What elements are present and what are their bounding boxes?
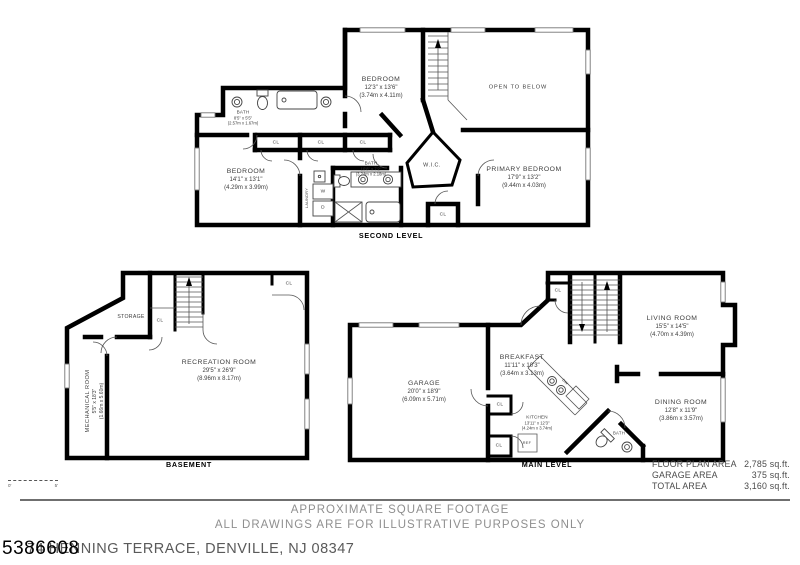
disclaimer-line-2: ALL DRAWINGS ARE FOR ILLUSTRATIVE PURPOS…: [0, 519, 800, 531]
closet-label: CL: [497, 403, 504, 408]
area-row-value: 2,785 sq.ft.: [744, 459, 790, 470]
fridge-label: REF: [523, 441, 532, 445]
room-label-breakfast: BREAKFAST 11'11" x 10'3" (3.64m x 3.13m): [500, 354, 545, 378]
room-label-recreation: RECREATION ROOM 29'5" x 26'9" (8.96m x 8…: [182, 359, 257, 383]
room-label-bath-top: BATH 8'5" x 5'5" (2.57m x 1.67m): [228, 110, 259, 127]
scale-bar: 0' 5': [8, 480, 58, 488]
room-label-mechanical: MECHANICAL ROOM 5'5" x 18'3" (1.66m x 5.…: [85, 370, 105, 433]
disclaimer-line-1: APPROXIMATE SQUARE FOOTAGE: [0, 504, 800, 516]
divider: [20, 499, 790, 501]
closet-label: CL: [286, 282, 293, 287]
table-row: FLOOR PLAN AREA 2,785 sq.ft.: [652, 459, 790, 470]
room-label-laundry: LAUNDRY: [305, 188, 309, 208]
area-row-label: FLOOR PLAN AREA: [652, 459, 737, 470]
area-row-label: TOTAL AREA: [652, 481, 707, 492]
washer-label: W: [321, 190, 326, 195]
closet-label: CL: [157, 319, 164, 324]
scale-start-label: 0': [8, 483, 11, 488]
room-label-wic: W.I.C.: [423, 162, 441, 169]
room-label-dining: DINING ROOM 12'8" x 11'9" (3.86m x 3.57m…: [655, 399, 707, 423]
closet-label: CL: [318, 141, 325, 146]
room-label-kitchen: KITCHEN 13'11" x 12'3" (4.24m x 3.74m): [522, 415, 553, 432]
caption-main-level: MAIN LEVEL: [522, 460, 573, 469]
closet-label: CL: [555, 289, 562, 294]
area-summary-table: FLOOR PLAN AREA 2,785 sq.ft. GARAGE AREA…: [652, 459, 790, 493]
table-row: TOTAL AREA 3,160 sq.ft.: [652, 481, 790, 492]
table-row: GARAGE AREA 375 sq.ft.: [652, 470, 790, 481]
area-row-value: 3,160 sq.ft.: [744, 481, 790, 492]
room-label-open-to-below: OPEN TO BELOW: [489, 84, 547, 91]
second-level-plan: [195, 26, 593, 230]
room-label-bedroom-top: BEDROOM 12'3" x 13'6" (3.74m x 4.11m): [359, 76, 402, 100]
room-label-primary-bedroom: PRIMARY BEDROOM 17'9" x 13'2" (9.44m x 4…: [486, 166, 561, 190]
area-row-label: GARAGE AREA: [652, 470, 718, 481]
floorplan-page: BEDROOM 12'3" x 13'6" (3.74m x 4.11m) OP…: [0, 0, 800, 565]
closet-label: CL: [360, 141, 367, 146]
caption-basement: BASEMENT: [166, 460, 212, 469]
area-row-value: 375 sq.ft.: [752, 470, 790, 481]
closet-label: CL: [440, 213, 447, 218]
dryer-label: D: [321, 206, 325, 211]
room-label-bath-main: BATH: [613, 431, 625, 436]
closet-label: CL: [273, 141, 280, 146]
caption-second-level: SECOND LEVEL: [359, 231, 423, 240]
scale-end-label: 5': [55, 483, 58, 488]
closet-label: CL: [496, 444, 503, 449]
room-label-living: LIVING ROOM 15'5" x 14'5" (4.70m x 4.39m…: [647, 315, 698, 339]
room-label-storage: STORAGE: [117, 314, 144, 320]
room-label-garage: GARAGE 20'0" x 18'9" (6.09m x 5.71m): [402, 380, 446, 404]
room-label-bath-bottom: BATH 10'8" x 7'2" (3.24m x 2.18m): [356, 161, 387, 178]
listing-number: 5386608: [2, 538, 79, 560]
room-label-bedroom-left: BEDROOM 14'1" x 13'1" (4.29m x 3.99m): [224, 168, 268, 192]
